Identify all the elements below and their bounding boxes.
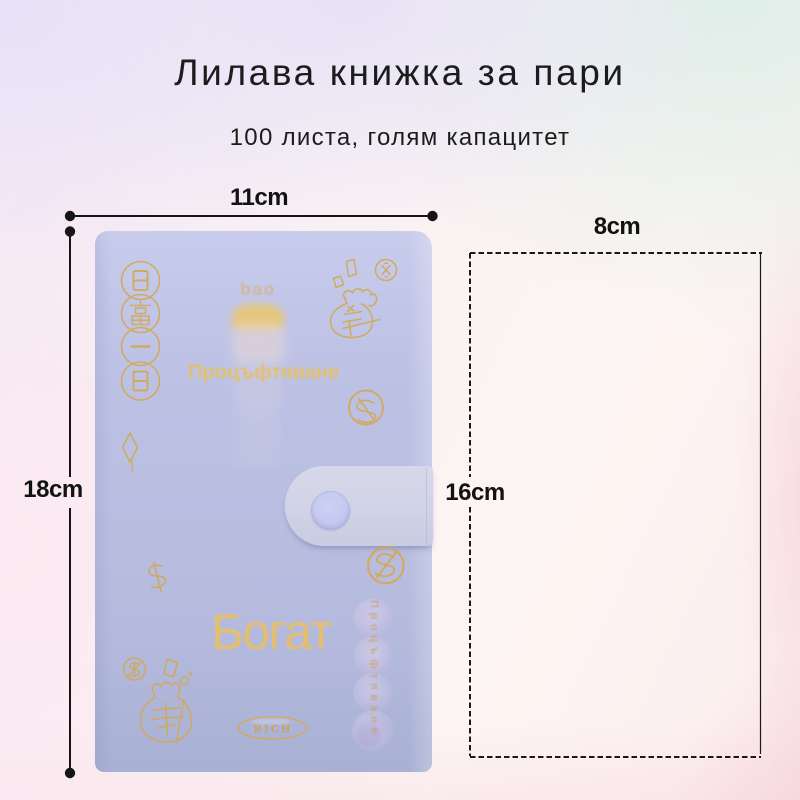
svg-text:RICH: RICH (254, 724, 293, 736)
svg-text:Процъфтяване: Процъфтяване (188, 361, 339, 384)
svg-text:bao: bao (240, 279, 276, 299)
svg-text:Богат: Богат (211, 604, 332, 660)
svg-text:Процъфтяване: Процъфтяване (368, 600, 380, 738)
